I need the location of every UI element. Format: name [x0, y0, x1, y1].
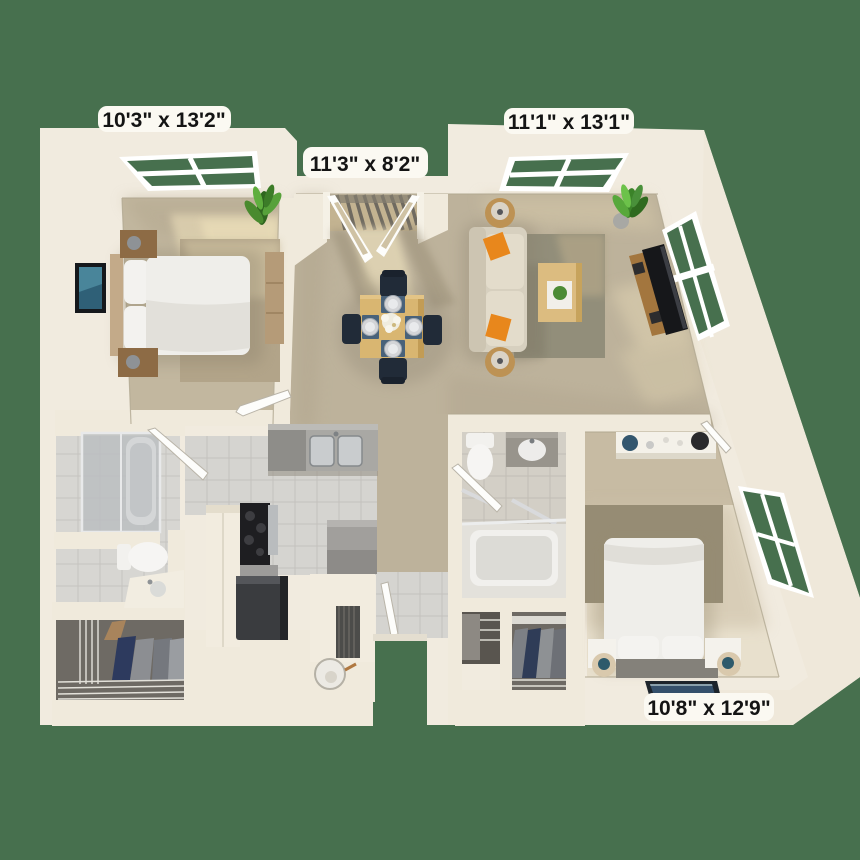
- svg-text:10'3" x 13'2": 10'3" x 13'2": [102, 109, 225, 132]
- svg-text:11'3" x 8'2": 11'3" x 8'2": [310, 153, 421, 176]
- svg-text:11'1" x 13'1": 11'1" x 13'1": [508, 111, 630, 134]
- svg-text:10'8" x 12'9": 10'8" x 12'9": [647, 697, 770, 720]
